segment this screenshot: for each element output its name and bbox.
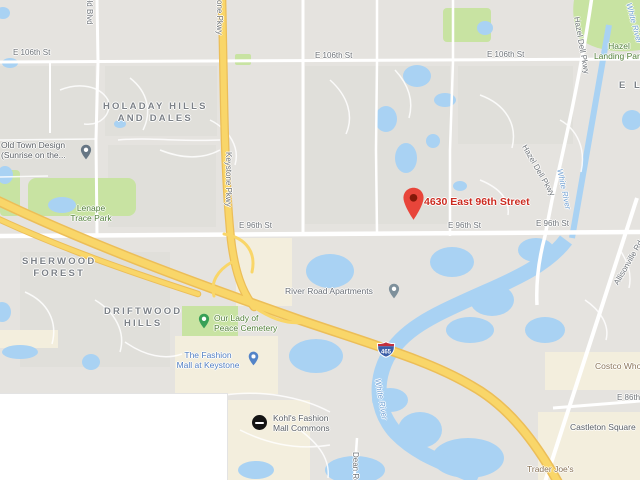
road-label-westfield-blvd: Westfield Blvd (84, 0, 94, 25)
street-label: E 86th St (617, 393, 640, 403)
neighborhood-line: SHERWOOD (22, 256, 96, 268)
poi-label-hazel-landing-park: Hazel Landing Park (589, 41, 640, 61)
poi-line: Hazel (589, 41, 640, 51)
poi-line: Lenape (63, 203, 119, 213)
poi-line: The Fashion (168, 350, 248, 360)
poi-label-castleton-square: Castleton Square (570, 422, 636, 432)
neighborhood-line: E L (619, 80, 640, 92)
neighborhood-line: AND DALES (103, 113, 208, 125)
poi-label-our-lady-of-peace-cemetery: Our Lady of Peace Cemetery (214, 313, 277, 333)
neighborhood-label-driftwood-hills: DRIFTWOOD HILLS (104, 306, 182, 330)
dealer-logo-box: Tom O'Brien CHRYSLER Jeep DODGE (0, 393, 228, 480)
destination-marker[interactable] (402, 185, 425, 223)
neighborhood-line: HOLADAY HILLS (103, 101, 208, 113)
poi-label-old-town-design: Old Town Design (Sunrise on the... (1, 140, 66, 160)
poi-line: (Sunrise on the... (1, 150, 66, 160)
poi-line: Our Lady of (214, 313, 277, 323)
poi-pin-old-town[interactable] (80, 144, 92, 160)
street-label: E 96th St (536, 219, 569, 229)
map-screenshot: E 106th St E 106th St E 106th St E 96th … (0, 0, 640, 480)
neighborhood-line: DRIFTWOOD (104, 306, 182, 318)
poi-line: Peace Cemetery (214, 323, 277, 333)
poi-pin-river-road-apartments[interactable] (388, 283, 400, 299)
road-label-dean-rd: Dean Rd (350, 452, 360, 480)
neighborhood-label-holaday-hills: HOLADAY HILLS AND DALES (103, 101, 208, 125)
neighborhood-label-partial: E L (619, 80, 640, 92)
poi-line: Trace Park (63, 213, 119, 223)
poi-label-kohls-fashion-mall-commons: Kohl's Fashion Mall Commons (273, 413, 330, 433)
neighborhood-line: HILLS (104, 318, 182, 330)
poi-line: Kohl's Fashion (273, 413, 330, 423)
street-label: E 106th St (13, 48, 50, 58)
street-label: E 106th St (487, 50, 524, 60)
svg-text:465: 465 (381, 350, 392, 356)
poi-label-trader-joes: Trader Joe's (527, 464, 574, 474)
poi-line: Old Town Design (1, 140, 66, 150)
poi-line: Mall at Keystone (168, 360, 248, 370)
neighborhood-line: FOREST (22, 268, 96, 280)
poi-label-costco: Costco Wholesale (595, 361, 640, 371)
neighborhood-label-sherwood-forest: SHERWOOD FOREST (22, 256, 96, 280)
poi-line: Mall Commons (273, 423, 330, 433)
poi-line: Landing Park (589, 51, 640, 61)
kohls-store-icon[interactable] (252, 415, 267, 430)
interstate-465-shield: 465 (375, 341, 397, 358)
poi-label-lenape-trace-park: Lenape Trace Park (63, 203, 119, 223)
poi-pin-fashion-mall[interactable] (248, 351, 259, 366)
street-label: E 96th St (239, 221, 272, 231)
road-label-keystone-pkwy: Keystone Pkwy (214, 0, 224, 35)
street-label: E 96th St (448, 221, 481, 231)
destination-marker-label: 4630 East 96th Street (424, 197, 530, 207)
street-label: E 106th St (315, 51, 352, 61)
poi-pin-cemetery[interactable] (198, 313, 210, 329)
poi-label-river-road-apartments: River Road Apartments (285, 286, 373, 296)
poi-label-fashion-mall: The Fashion Mall at Keystone (168, 350, 248, 370)
road-label-keystone-pkwy: Keystone Pkwy (223, 152, 233, 207)
